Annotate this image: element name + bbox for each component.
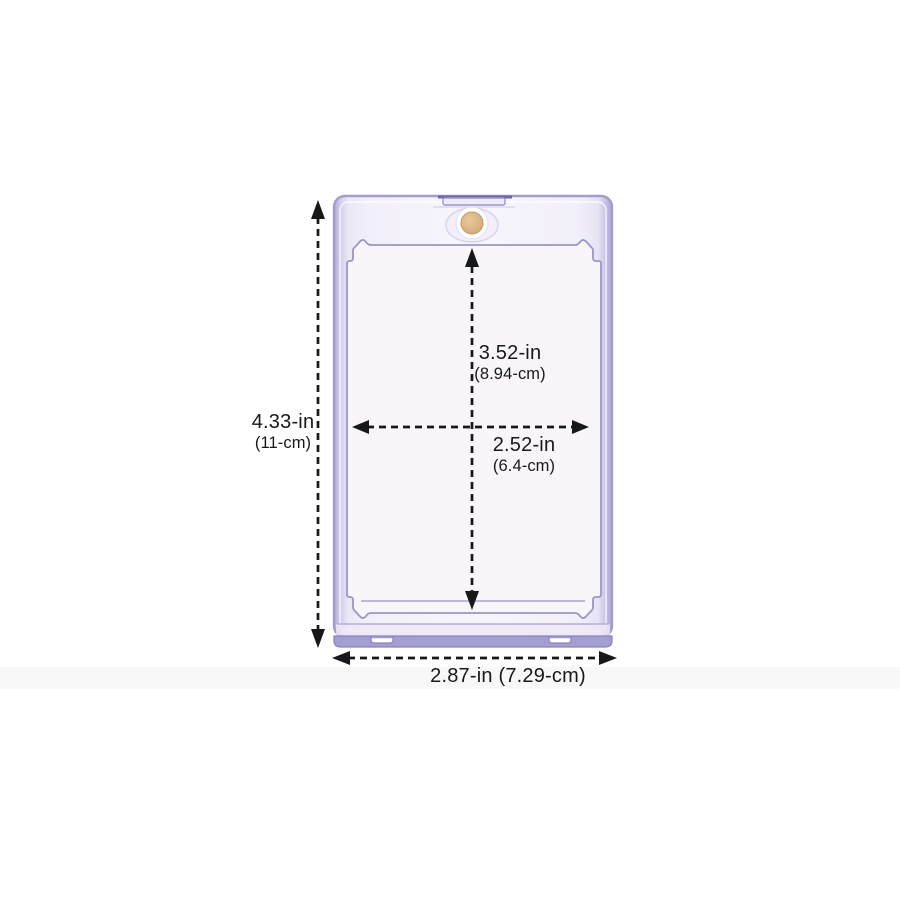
- inner-width-inches: 2.52-in: [464, 435, 584, 456]
- outer-height-metric: (11-cm): [243, 435, 323, 452]
- magnet-button: [461, 212, 483, 234]
- outer-height-label: 4.33-in (11-cm): [243, 412, 323, 452]
- inner-frame: [347, 240, 601, 618]
- inner-width-label: 2.52-in (6.4-cm): [464, 435, 584, 475]
- outer-width-dimension-line: [332, 651, 617, 665]
- inner-height-inches: 3.52-in: [450, 343, 570, 364]
- top-tab: [443, 198, 505, 205]
- product-dimension-diagram: 4.33-in (11-cm) 3.52-in (8.94-cm) 2.52-i…: [0, 0, 900, 900]
- outer-width-label: 2.87-in (7.29-cm): [408, 666, 608, 687]
- outer-width-combined: 2.87-in (7.29-cm): [408, 666, 608, 687]
- inner-height-label: 3.52-in (8.94-cm): [450, 343, 570, 383]
- inner-height-metric: (8.94-cm): [450, 366, 570, 383]
- card-holder-graphic: [0, 0, 900, 900]
- inner-width-metric: (6.4-cm): [464, 458, 584, 475]
- bottom-rim-band: [336, 624, 610, 636]
- outer-height-inches: 4.33-in: [243, 412, 323, 433]
